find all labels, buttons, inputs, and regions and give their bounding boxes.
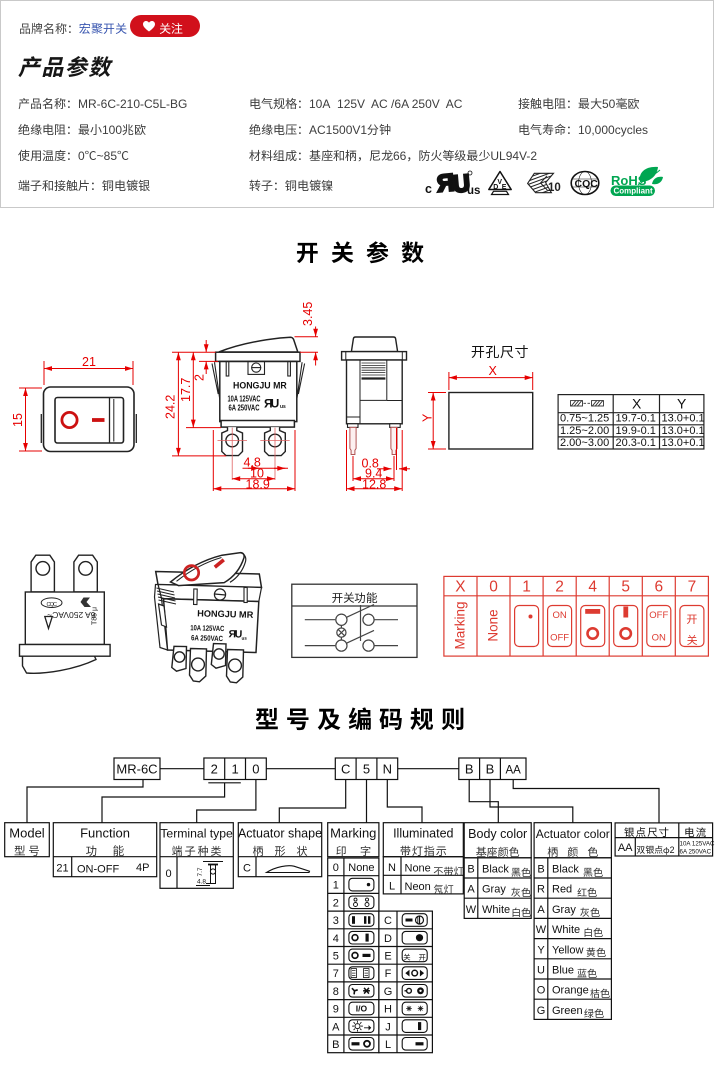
svg-text:ON: ON bbox=[552, 607, 566, 621]
svg-text:Function: Function bbox=[80, 823, 130, 842]
svg-text:5: 5 bbox=[621, 574, 630, 596]
svg-text:B: B bbox=[486, 759, 495, 778]
svg-text:6A 250VAC: 6A 250VAC bbox=[680, 847, 712, 856]
svg-text:4.8: 4.8 bbox=[197, 876, 206, 886]
svg-text:G: G bbox=[537, 1002, 546, 1018]
svg-text:5: 5 bbox=[363, 759, 370, 778]
svg-text:ON: ON bbox=[652, 630, 666, 644]
svg-text:2: 2 bbox=[211, 759, 218, 778]
svg-text:White: White bbox=[482, 901, 510, 917]
svg-text:Red: Red bbox=[552, 881, 572, 897]
svg-text:HONGJU MR: HONGJU MR bbox=[233, 379, 287, 392]
svg-text:ЯU: ЯU bbox=[228, 626, 241, 641]
svg-text:C: C bbox=[243, 860, 251, 876]
svg-text:Gray: Gray bbox=[552, 901, 576, 917]
svg-text:0: 0 bbox=[489, 574, 498, 596]
svg-text:7: 7 bbox=[688, 574, 697, 596]
svg-text:18.9: 18.9 bbox=[246, 474, 270, 493]
svg-text:A: A bbox=[467, 881, 475, 897]
svg-text:B: B bbox=[537, 861, 544, 877]
svg-text:AA: AA bbox=[506, 762, 522, 778]
svg-text:A: A bbox=[332, 1018, 340, 1034]
svg-text:D: D bbox=[384, 930, 392, 946]
svg-text:7: 7 bbox=[333, 965, 339, 981]
svg-text:20.3-0.1: 20.3-0.1 bbox=[616, 434, 656, 450]
svg-text:Marking: Marking bbox=[330, 823, 376, 842]
svg-text:Yellow: Yellow bbox=[552, 941, 583, 957]
svg-text:OFF: OFF bbox=[550, 630, 569, 644]
svg-text:HONGJU MR: HONGJU MR bbox=[197, 605, 254, 620]
svg-text:L: L bbox=[389, 878, 395, 894]
svg-text:us: us bbox=[467, 182, 480, 198]
svg-text:0: 0 bbox=[252, 759, 259, 778]
svg-text:OFF: OFF bbox=[649, 607, 668, 621]
svg-text:X: X bbox=[489, 360, 498, 379]
svg-text:Body color: Body color bbox=[468, 823, 527, 842]
svg-text:D: D bbox=[493, 182, 498, 192]
svg-text:Marking: Marking bbox=[449, 601, 469, 649]
svg-text:H: H bbox=[384, 1001, 392, 1017]
svg-text:MR-6C: MR-6C bbox=[116, 759, 157, 778]
svg-text:R: R bbox=[537, 881, 545, 897]
svg-text:0: 0 bbox=[165, 865, 171, 881]
svg-text:2: 2 bbox=[555, 574, 564, 596]
svg-text:13.0+0.1: 13.0+0.1 bbox=[662, 434, 705, 450]
svg-text:X: X bbox=[455, 574, 466, 596]
svg-text:c: c bbox=[425, 178, 432, 197]
svg-text:CQC: CQC bbox=[47, 600, 58, 608]
svg-text:None: None bbox=[348, 859, 374, 875]
svg-text:Illuminated: Illuminated bbox=[393, 823, 453, 842]
svg-text:N: N bbox=[383, 759, 392, 778]
svg-text:Black: Black bbox=[552, 861, 579, 877]
svg-text:B: B bbox=[465, 759, 474, 778]
svg-text:21: 21 bbox=[82, 351, 96, 370]
svg-text:10: 10 bbox=[548, 179, 561, 195]
svg-text:B: B bbox=[467, 861, 474, 877]
svg-text:4: 4 bbox=[588, 574, 597, 596]
svg-text:None: None bbox=[482, 609, 502, 641]
svg-text:Black: Black bbox=[482, 861, 509, 877]
svg-text:6A 250VAC: 6A 250VAC bbox=[191, 632, 224, 644]
svg-text:L: L bbox=[385, 1036, 391, 1052]
svg-text:Terminal type: Terminal type bbox=[160, 824, 233, 842]
svg-text:I/O: I/O bbox=[356, 1003, 368, 1015]
svg-text:B: B bbox=[332, 1036, 339, 1052]
svg-text:2: 2 bbox=[189, 374, 208, 381]
svg-text:Neon: Neon bbox=[405, 878, 431, 894]
svg-text:G: G bbox=[384, 983, 393, 999]
svg-text:White: White bbox=[552, 921, 580, 937]
svg-text:0: 0 bbox=[333, 859, 339, 875]
svg-text:1: 1 bbox=[333, 877, 339, 893]
svg-text:C: C bbox=[384, 912, 392, 928]
svg-text:N: N bbox=[388, 859, 396, 875]
svg-text:12.8: 12.8 bbox=[362, 474, 386, 493]
svg-text:W: W bbox=[536, 921, 547, 937]
svg-text:1: 1 bbox=[522, 574, 531, 596]
svg-text:Y: Y bbox=[537, 941, 545, 957]
svg-text:1: 1 bbox=[231, 759, 238, 778]
svg-text:Actuator shape: Actuator shape bbox=[238, 823, 322, 842]
svg-text:3.45: 3.45 bbox=[297, 302, 316, 326]
svg-text:O: O bbox=[537, 982, 546, 998]
svg-text:6A 250VAC~: 6A 250VAC~ bbox=[47, 609, 95, 621]
svg-text:4: 4 bbox=[333, 930, 339, 946]
svg-text:8: 8 bbox=[333, 983, 339, 999]
svg-text:Model: Model bbox=[9, 823, 45, 842]
svg-text:2: 2 bbox=[333, 894, 339, 910]
svg-text:C: C bbox=[341, 759, 350, 778]
svg-text:CQC: CQC bbox=[575, 176, 599, 191]
svg-text:2.00~3.00: 2.00~3.00 bbox=[560, 434, 609, 450]
svg-text:6A 250VAC: 6A 250VAC bbox=[229, 403, 260, 414]
svg-text:ON-OFF: ON-OFF bbox=[77, 861, 119, 877]
svg-text:Y: Y bbox=[417, 413, 436, 422]
svg-text:6: 6 bbox=[654, 574, 663, 596]
svg-text:us: us bbox=[280, 403, 286, 410]
svg-text:E: E bbox=[502, 182, 507, 192]
svg-text:9: 9 bbox=[333, 1001, 339, 1017]
svg-text:Blue: Blue bbox=[552, 962, 574, 978]
svg-text:Green: Green bbox=[552, 1002, 583, 1018]
svg-text:Orange: Orange bbox=[552, 982, 589, 998]
svg-text:us: us bbox=[241, 636, 247, 642]
svg-text:3: 3 bbox=[333, 912, 339, 928]
svg-text:ЯU: ЯU bbox=[264, 395, 279, 412]
svg-text:A: A bbox=[537, 901, 545, 917]
svg-text:Gray: Gray bbox=[482, 881, 506, 897]
svg-text:J: J bbox=[385, 1018, 391, 1034]
svg-text:F: F bbox=[385, 965, 392, 981]
svg-text:4P: 4P bbox=[136, 859, 149, 875]
svg-text:21: 21 bbox=[56, 860, 68, 876]
svg-text:None: None bbox=[405, 860, 431, 876]
svg-text:U: U bbox=[537, 962, 545, 978]
svg-text:5: 5 bbox=[333, 948, 339, 964]
svg-text:Compliant: Compliant bbox=[614, 186, 653, 197]
svg-text:15: 15 bbox=[7, 413, 26, 427]
svg-text:W: W bbox=[466, 901, 477, 917]
